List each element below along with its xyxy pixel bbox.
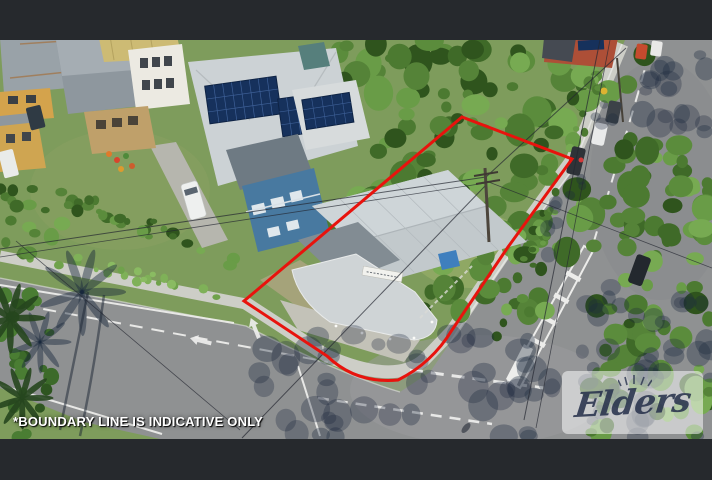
boundary-disclaimer-text: *BOUNDARY LINE IS INDICATIVE ONLY xyxy=(13,414,263,429)
parked-car xyxy=(650,40,663,56)
parked-car xyxy=(635,43,648,59)
agency-watermark: Elders xyxy=(562,371,703,434)
letterbox-bottom-bar xyxy=(0,439,712,480)
agency-watermark-text: Elders xyxy=(573,382,692,422)
letterbox-top-bar xyxy=(0,0,712,40)
listing-photo-frame: *BOUNDARY LINE IS INDICATIVE ONLY Elders xyxy=(0,0,712,480)
street-sign-dot xyxy=(601,88,608,95)
